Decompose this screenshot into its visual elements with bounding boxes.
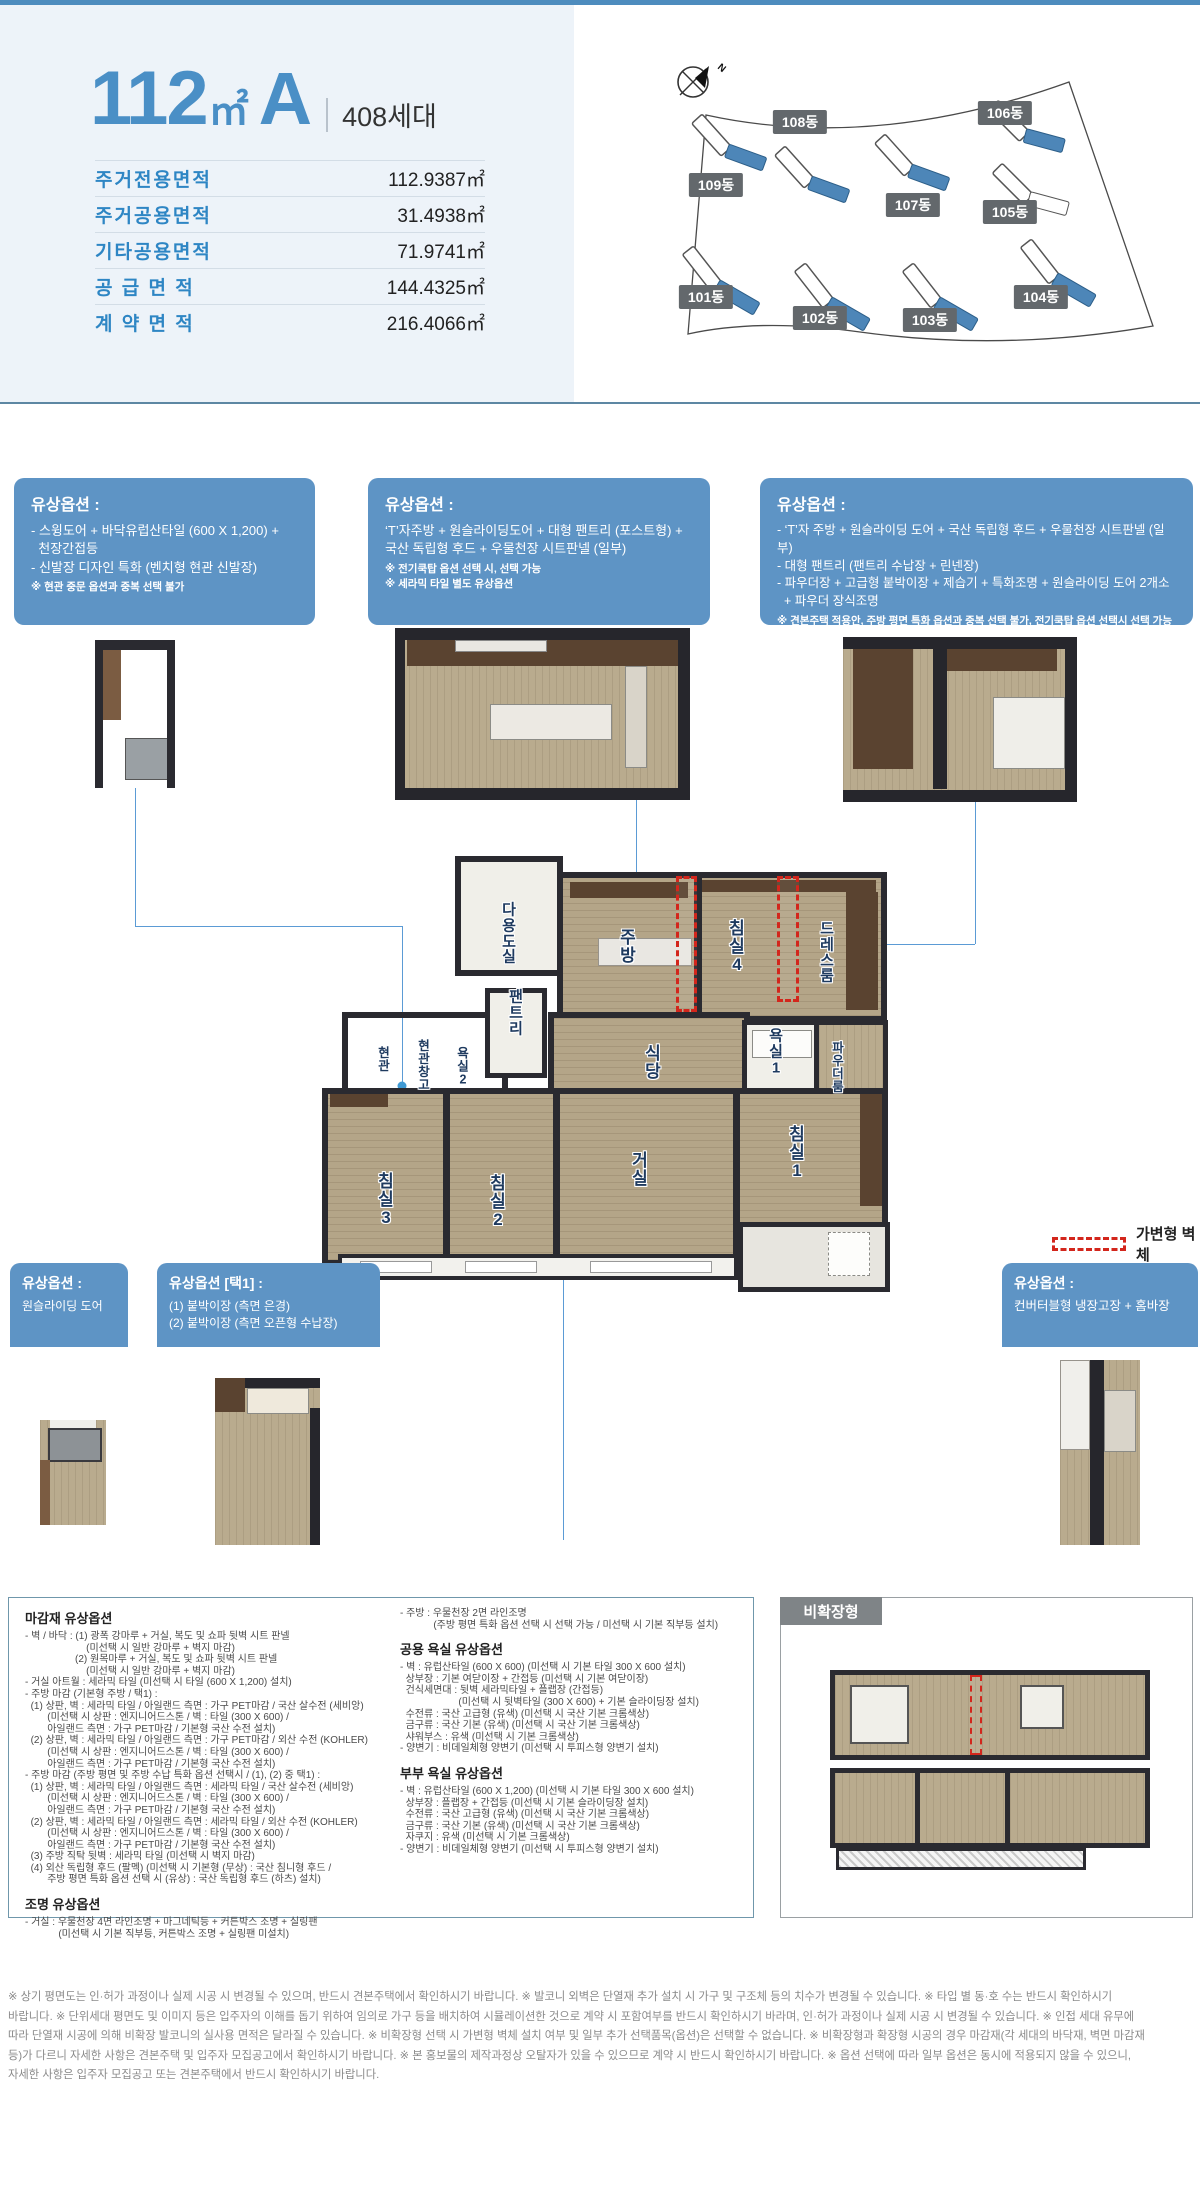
- option-box-title: 유상옵션 :: [1014, 1273, 1186, 1293]
- unit-size: 112: [90, 55, 207, 142]
- brochure-page: 112 ㎡ A 408세대 주거전용면적 112.9387㎡ 주거공용면적 31…: [0, 0, 1200, 2193]
- option-box-title: 유상옵션 :: [31, 491, 298, 515]
- movable-wall-legend-swatch: [1052, 1237, 1126, 1251]
- option-box-title: 유상옵션 :: [22, 1273, 116, 1293]
- room-label-living: 거실: [632, 1152, 648, 1188]
- option-box-kitchen: 유상옵션 : ‘T’자주방 + 원슬라이딩도어 + 대형 팬트리 (포스트형) …: [368, 478, 710, 625]
- option-box-items: (1) 붙박이장 (측면 은경) (2) 붙박이장 (측면 오픈형 수납장): [169, 1298, 368, 1332]
- building-badge-105: 105동: [983, 200, 1037, 224]
- option-box-items: 원슬라이딩 도어: [22, 1298, 116, 1315]
- building-badge-104: 104동: [1014, 285, 1068, 309]
- common-bath-heading: 공용 욕실 유상옵션: [400, 1639, 745, 1658]
- master-bath-heading: 부부 욕실 유상옵션: [400, 1763, 745, 1782]
- option-box-fridge-homebar: 유상옵션 : 컨버터블형 냉장고장 + 홈바장: [1002, 1263, 1198, 1347]
- room-label-kitchen: 주방: [620, 929, 636, 965]
- table-row: 공 급 면 적 144.4325㎡: [95, 269, 485, 305]
- area-value: 144.4325㎡: [387, 273, 485, 300]
- movable-wall-marker: [777, 876, 799, 1002]
- area-value: 112.9387㎡: [388, 165, 485, 192]
- option-box-items: - 스윙도어 + 바닥유럽산타일 (600 X 1,200) + 천장간접등 -…: [31, 522, 298, 577]
- kitchen-option-image: [395, 628, 690, 800]
- area-value: 216.4066㎡: [387, 309, 485, 336]
- finish-options-body: - 벽 / 바닥 : (1) 광폭 강마루 + 거실, 복도 및 쇼파 뒷벽 시…: [25, 1631, 385, 1886]
- table-row: 기타공용면적 71.9741㎡: [95, 233, 485, 269]
- option-box-notes: ※ 현관 중문 옵션과 중복 선택 불가: [31, 580, 298, 595]
- entry-option-image: [95, 640, 175, 788]
- lighting-options-heading: 조명 유상옵션: [25, 1894, 385, 1913]
- room-label-bath1: 욕실1: [769, 1028, 783, 1075]
- room-label-bath2: 욕실2: [457, 1047, 469, 1086]
- title-divider: [326, 98, 328, 132]
- section-divider: [0, 402, 1200, 404]
- area-label: 계 약 면 적: [95, 309, 195, 336]
- finish-options-heading: 마감재 유상옵션: [25, 1608, 385, 1627]
- unexpanded-plan-label: 비확장형: [780, 1597, 882, 1625]
- building-badge-103: 103동: [903, 308, 957, 332]
- finish-options-left-column: 마감재 유상옵션 - 벽 / 바닥 : (1) 광폭 강마루 + 거실, 복도 …: [25, 1608, 385, 1948]
- common-bath-body: - 벽 : 유럽산타일 (600 X 600) (미선택 시 기본 타일 300…: [400, 1662, 745, 1755]
- lighting-options-body: - 거실 : 우물천장 4면 라인조명 + 마그네틱등 + 커튼박스 조명 + …: [25, 1917, 385, 1940]
- table-row: 계 약 면 적 216.4066㎡: [95, 305, 485, 340]
- option-box-sliding-door: 유상옵션 : 원슬라이딩 도어: [10, 1263, 128, 1347]
- building-badge-109: 109동: [689, 173, 743, 197]
- room-label-powder: 파우더룸: [832, 1042, 844, 1095]
- option-box-title: 유상옵션 :: [777, 491, 1176, 515]
- option-box-bedroom4: 유상옵션 : - ‘T’자 주방 + 원슬라이딩 도어 + 국산 독립형 후드 …: [760, 478, 1193, 625]
- room-label-utility: 다용도실: [502, 903, 516, 966]
- households-count: 408세대: [342, 95, 437, 134]
- table-row: 주거공용면적 31.4938㎡: [95, 197, 485, 233]
- wardrobe-image: [215, 1378, 320, 1545]
- area-label: 기타공용면적: [95, 237, 212, 264]
- area-value: 31.4938㎡: [397, 201, 485, 228]
- compass-icon: N: [678, 62, 728, 97]
- connector-line: [135, 926, 403, 927]
- building-badge-106: 106동: [978, 101, 1032, 125]
- room-label-bedroom3: 침실3: [378, 1173, 394, 1227]
- connector-line: [975, 802, 976, 944]
- option-box-title: 유상옵션 [택1] :: [169, 1273, 368, 1293]
- option-box-notes: ※ 전기쿡탑 옵션 선택 시, 선택 가능 ※ 세라믹 타일 별도 유상옵션: [385, 562, 693, 591]
- room-label-dressroom: 드레스룸: [820, 922, 834, 985]
- area-table: 주거전용면적 112.9387㎡ 주거공용면적 31.4938㎡ 기타공용면적 …: [95, 160, 485, 340]
- building-badge-108: 108동: [773, 110, 827, 134]
- unit-size-unit: ㎡: [209, 78, 249, 136]
- unexpanded-plan-image: [820, 1650, 1160, 1890]
- master-bath-body: - 벽 : 유럽산타일 (600 X 1,200) (미선택 시 기본 타일 3…: [400, 1786, 745, 1856]
- kitchen-ceiling-body: - 주방 : 우물천장 2면 라인조명 (주방 평면 특화 옵션 선택 시 선택…: [400, 1608, 745, 1631]
- finish-options-mid-column: - 주방 : 우물천장 2면 라인조명 (주방 평면 특화 옵션 선택 시 선택…: [400, 1608, 745, 1864]
- area-label: 공 급 면 적: [95, 273, 195, 300]
- movable-wall-marker: [676, 876, 697, 1012]
- area-label: 주거공용면적: [95, 201, 212, 228]
- option-box-entry: 유상옵션 : - 스윙도어 + 바닥유럽산타일 (600 X 1,200) + …: [14, 478, 315, 625]
- area-label: 주거전용면적: [95, 165, 212, 192]
- svg-text:N: N: [715, 62, 728, 75]
- option-box-title: 유상옵션 :: [385, 491, 693, 515]
- building-badge-107: 107동: [886, 193, 940, 217]
- option-box-wardrobe: 유상옵션 [택1] : (1) 붙박이장 (측면 은경) (2) 붙박이장 (측…: [157, 1263, 380, 1347]
- option-box-items: 컨버터블형 냉장고장 + 홈바장: [1014, 1298, 1186, 1316]
- room-label-pantry: 팬트리: [509, 989, 523, 1036]
- unit-title: 112 ㎡ A 408세대: [90, 55, 437, 142]
- table-row: 주거전용면적 112.9387㎡: [95, 160, 485, 197]
- fridge-homebar-image: [1060, 1360, 1140, 1545]
- room-label-dining: 식당: [645, 1045, 661, 1081]
- connector-line: [135, 788, 136, 926]
- area-value: 71.9741㎡: [397, 237, 485, 264]
- option-box-items: ‘T’자주방 + 원슬라이딩도어 + 대형 팬트리 (포스트형) + 국산 독립…: [385, 522, 693, 559]
- room-label-bedroom1: 침실1: [789, 1126, 805, 1180]
- disclaimer-text: ※ 상기 평면도는 인·허가 과정이나 실제 시공 시 변경될 수 있으며, 반…: [8, 1988, 1192, 2086]
- building-badge-101: 101동: [679, 285, 733, 309]
- room-label-bedroom4: 침실4: [729, 920, 745, 974]
- bedroom4-option-image: [843, 637, 1077, 802]
- room-label-entrance-storage: 현관 창고: [418, 1040, 430, 1093]
- option-box-items: - ‘T’자 주방 + 원슬라이딩 도어 + 국산 독립형 후드 + 우물천장 …: [777, 522, 1176, 611]
- movable-wall-legend-label: 가변형 벽체: [1136, 1223, 1200, 1265]
- room-label-bedroom2: 침실2: [490, 1175, 506, 1229]
- building-badge-102: 102동: [793, 306, 847, 330]
- room-label-entrance: 현관: [378, 1047, 390, 1073]
- unit-type: A: [259, 56, 312, 141]
- sliding-door-image: [40, 1420, 106, 1525]
